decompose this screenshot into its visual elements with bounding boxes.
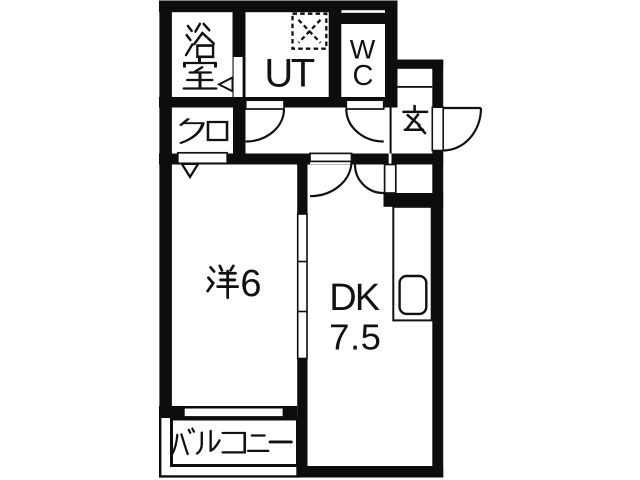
svg-text:7.5: 7.5: [329, 317, 381, 358]
svg-text:C: C: [353, 60, 374, 92]
svg-text:UT: UT: [264, 51, 314, 95]
svg-text:DK: DK: [329, 277, 379, 319]
svg-text:6: 6: [240, 263, 261, 305]
